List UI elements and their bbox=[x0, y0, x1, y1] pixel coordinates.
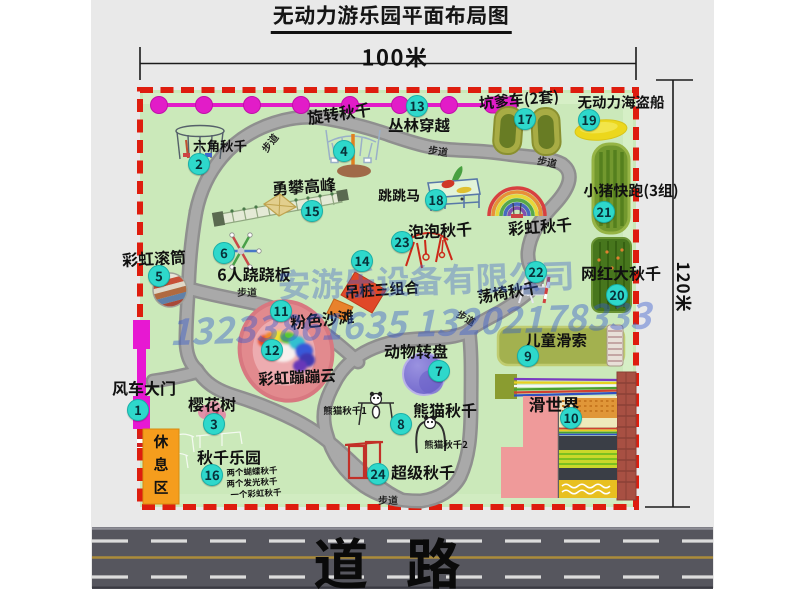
svg-text:息: 息 bbox=[153, 454, 168, 475]
svg-text:休: 休 bbox=[153, 431, 168, 452]
svg-text:区: 区 bbox=[153, 477, 168, 498]
